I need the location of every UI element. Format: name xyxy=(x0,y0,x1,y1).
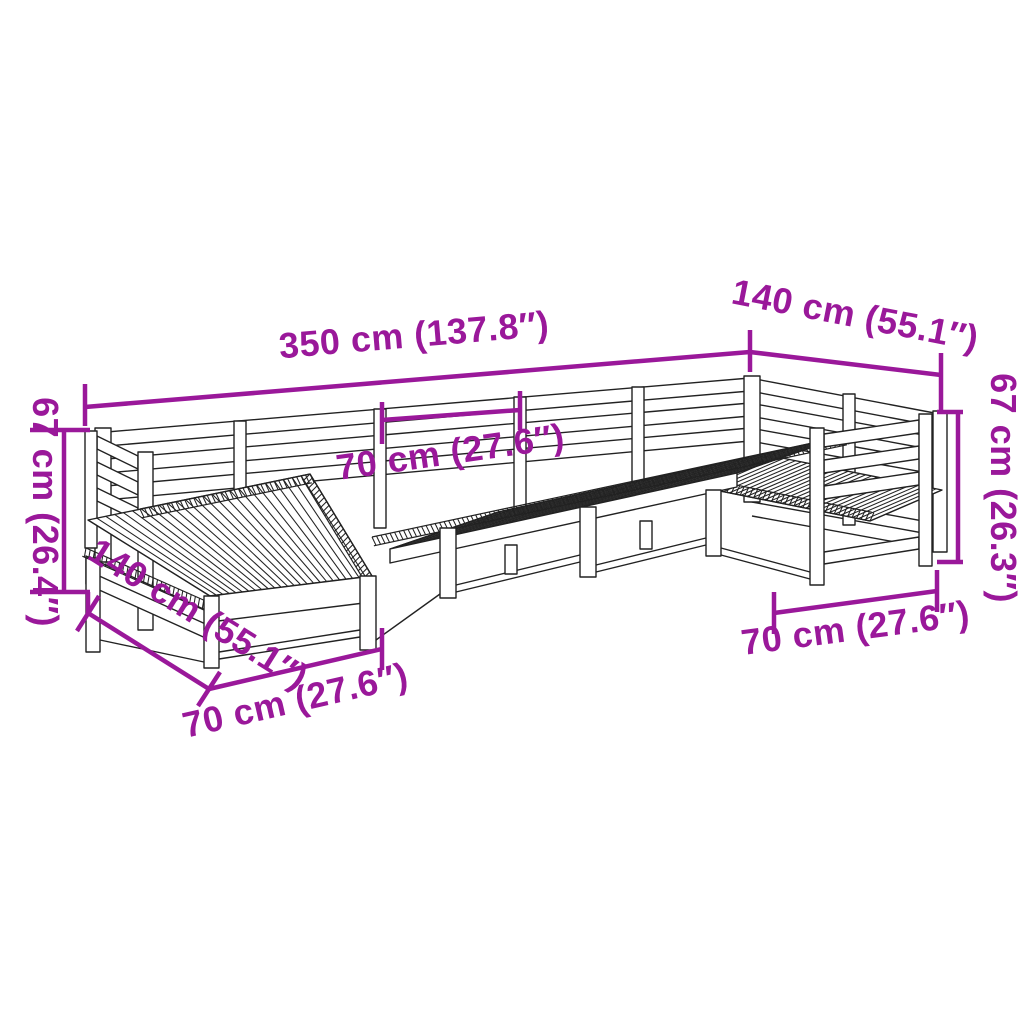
sofa-part-outline xyxy=(810,428,824,585)
sofa-part-outline xyxy=(933,411,947,552)
dim-right-return-length-label: 140 cm (55.1″) xyxy=(729,271,983,359)
sofa-part-outline xyxy=(919,414,932,566)
dim-module-width-label: 70 cm (27.6″) xyxy=(334,415,567,488)
sofa-dimension-diagram: 350 cm (137.8″)140 cm (55.1″)67 cm (26.3… xyxy=(0,0,1024,1024)
slat-end-tick xyxy=(413,528,417,536)
slat-end-tick xyxy=(404,530,408,538)
sofa-rail-line xyxy=(721,555,810,579)
sofa-rail-line xyxy=(376,594,440,640)
sofa-rail-line xyxy=(456,562,580,592)
slat-end-tick xyxy=(417,527,421,535)
slat-end-tick xyxy=(435,524,439,532)
sofa-part-outline xyxy=(440,528,456,598)
slat-end-tick xyxy=(408,529,412,537)
slat-end-tick xyxy=(390,533,394,541)
dim-left-height-label: 67 cm (26.4″) xyxy=(25,397,66,627)
sofa-rail-line xyxy=(721,548,810,572)
slat-end-tick xyxy=(395,532,399,540)
sofa-rail-line xyxy=(456,555,580,585)
sofa-part-outline xyxy=(824,537,919,564)
dim-overall-width-label: 350 cm (137.8″) xyxy=(277,303,550,367)
sofa-part-outline xyxy=(505,545,517,574)
slat-end-tick xyxy=(431,524,435,532)
slat-end-tick xyxy=(372,537,376,545)
dim-right-height-label: 67 cm (26.3″) xyxy=(983,373,1024,603)
slat-end-tick xyxy=(422,526,426,534)
slat-end-tick xyxy=(426,525,430,533)
sofa-part-outline xyxy=(706,490,721,556)
dimension-line xyxy=(750,352,941,375)
diagram-page: 350 cm (137.8″)140 cm (55.1″)67 cm (26.3… xyxy=(0,0,1024,1024)
slat-end-tick xyxy=(399,531,403,539)
slat-end-tick xyxy=(381,535,385,543)
slat-end-tick xyxy=(386,534,390,542)
sofa-part-outline xyxy=(640,521,652,549)
sofa-part-outline xyxy=(580,507,596,577)
sofa-part-outline xyxy=(360,576,376,650)
sofa-part-outline xyxy=(85,431,97,548)
slat-end-tick xyxy=(377,536,381,544)
